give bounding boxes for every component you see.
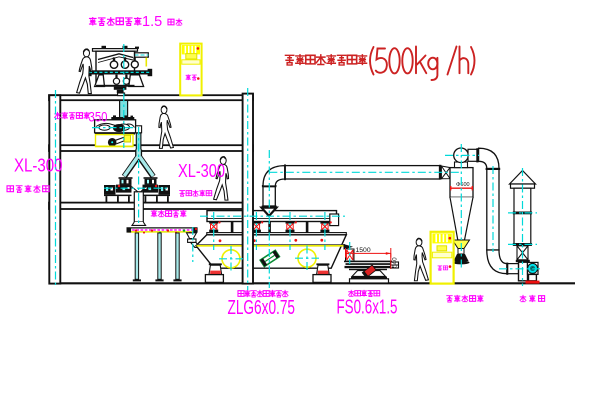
svg-text:1.5: 1.5 [142, 14, 162, 30]
svg-text:1500: 1500 [356, 247, 371, 254]
svg-text:540: 540 [392, 257, 399, 268]
svg-text:ZLG6x0.75: ZLG6x0.75 [228, 297, 296, 319]
svg-text:350: 350 [89, 110, 108, 125]
svg-text:XL-300: XL-300 [178, 161, 225, 181]
svg-text:Φ600: Φ600 [456, 182, 470, 188]
svg-text:FS0.6x1.5: FS0.6x1.5 [337, 297, 398, 319]
